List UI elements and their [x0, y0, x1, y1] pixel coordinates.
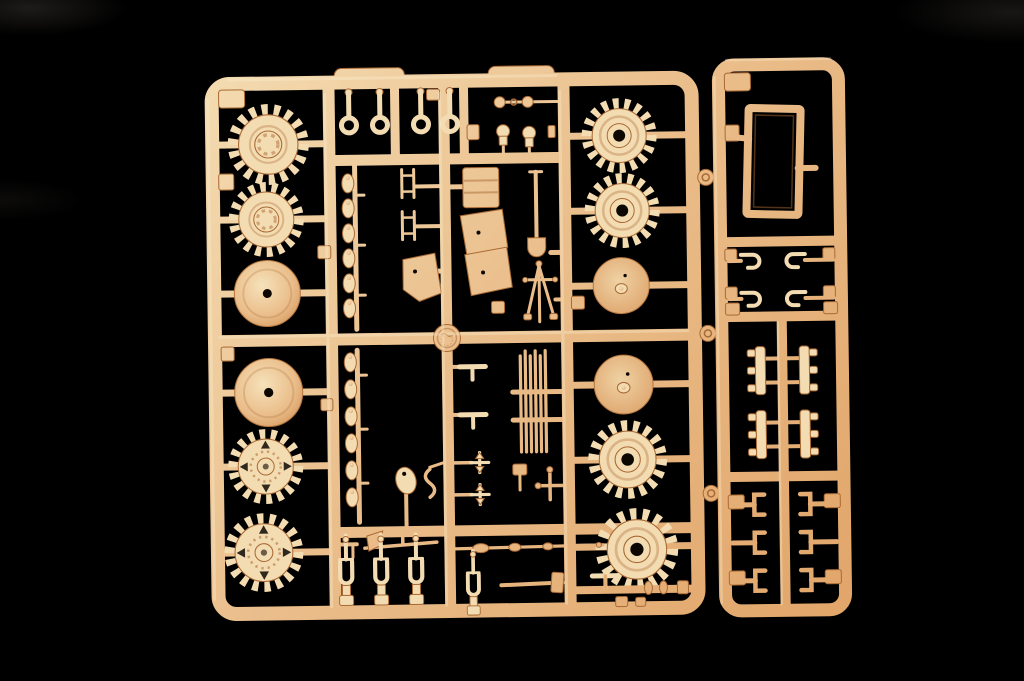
- hatch-frame: [731, 107, 816, 216]
- sprocket-wheel: [587, 103, 652, 168]
- bracket-plate: [403, 253, 447, 302]
- maker-disc: [433, 324, 460, 351]
- sprocket-wheel: [233, 434, 298, 499]
- photo-model-kit-sprue: [0, 0, 1024, 681]
- periscope-knob: [548, 125, 555, 137]
- road-wheel: [234, 260, 301, 327]
- fender-plates: [460, 209, 512, 296]
- small-fittings-cell: [467, 96, 565, 159]
- sprocket-wheel: [233, 109, 303, 179]
- suspension-strip: [344, 350, 368, 522]
- hammer: [501, 572, 570, 594]
- sprocket-wheel: [230, 519, 298, 587]
- right-frame: [718, 64, 846, 612]
- periscope-knob: [523, 126, 536, 147]
- suspension-strip: [342, 162, 366, 329]
- left-wheel-column: [219, 109, 336, 587]
- periscope-knob: [496, 125, 509, 146]
- float-egg-part: [393, 465, 420, 532]
- stowage-box: [445, 167, 500, 208]
- road-wheel: [234, 358, 303, 427]
- idler-disc: [594, 355, 654, 415]
- right-wheel-column: [564, 103, 699, 586]
- sprocket-wheel: [234, 187, 299, 252]
- sprue-illustration: [0, 0, 1024, 681]
- rod-bundle: [512, 350, 568, 452]
- ladder-bracket: [402, 169, 446, 240]
- j-clips: [725, 248, 836, 307]
- sprocket-wheel: [590, 178, 655, 243]
- valve-part: [513, 463, 569, 500]
- sprocket-wheel: [594, 425, 662, 493]
- idler-disc: [593, 257, 650, 314]
- bottom-tools-left: [335, 530, 438, 605]
